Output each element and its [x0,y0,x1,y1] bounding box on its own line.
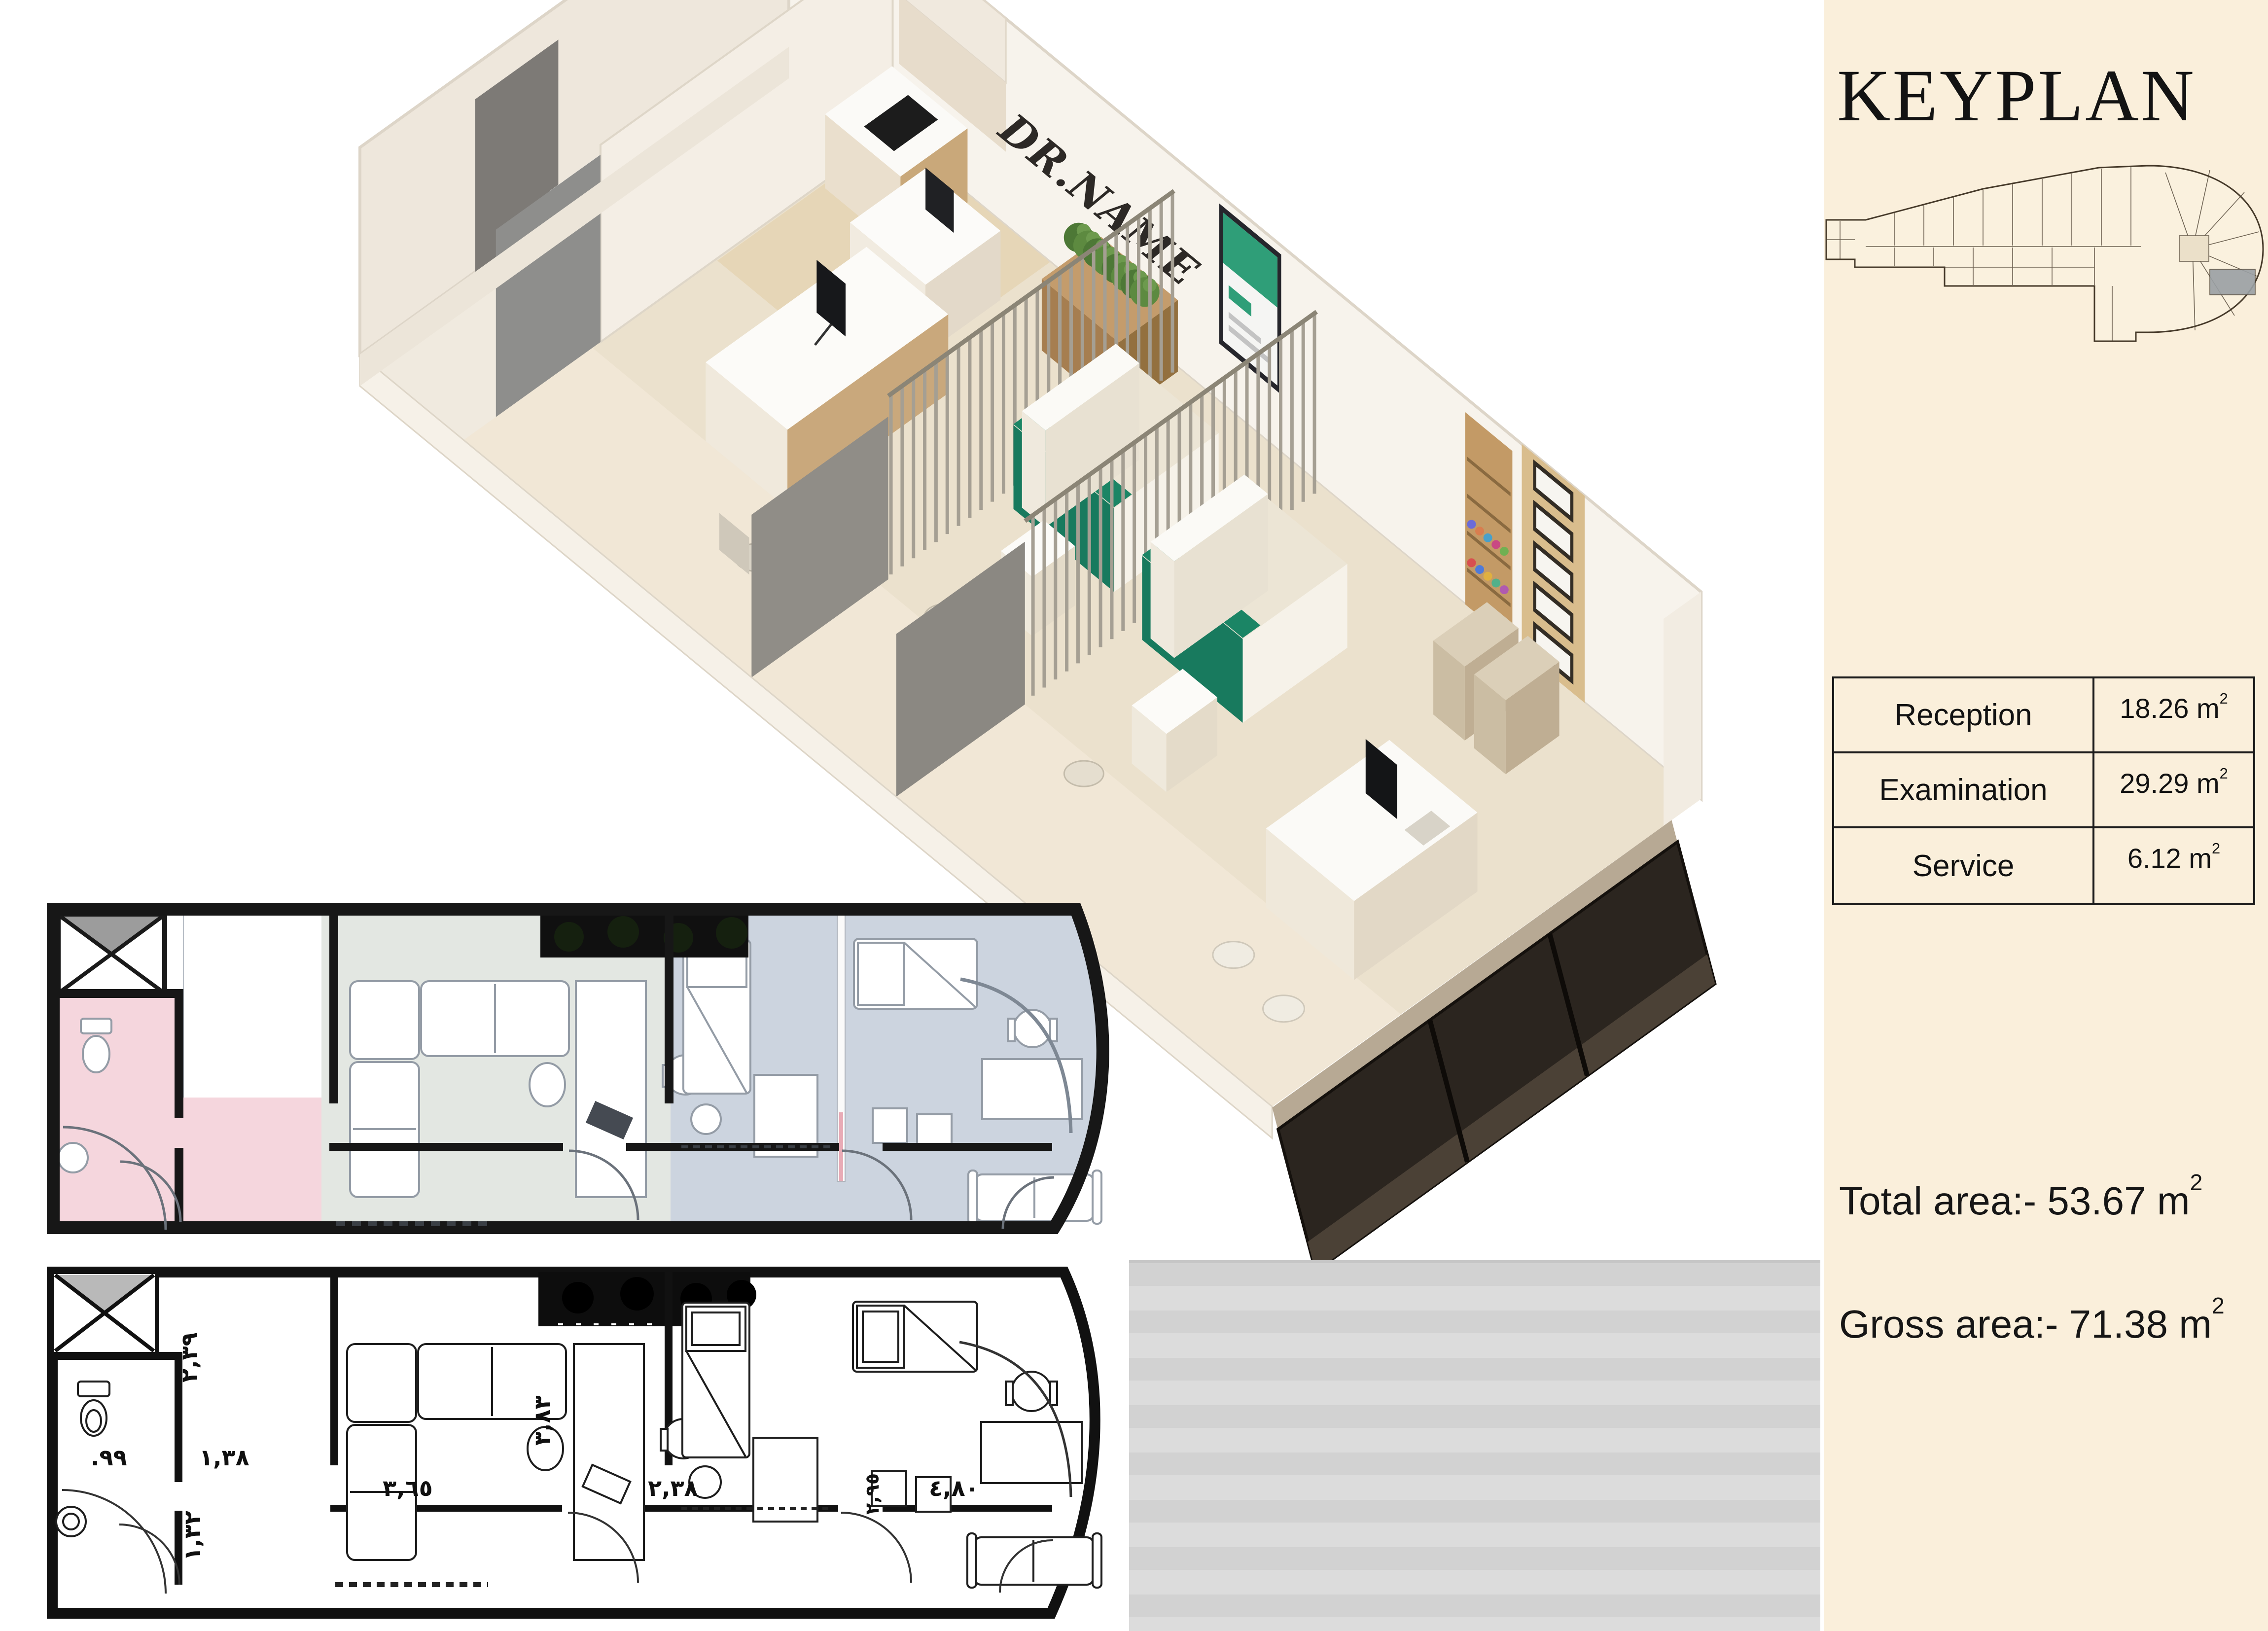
areas-table: Reception 18.26 m2 Examination 29.29 m2 … [1832,676,2255,905]
shelf-item [1484,572,1492,581]
table-row: Service 6.12 m2 [1834,828,2253,903]
info-sidebar: KEYPLAN [1824,0,2268,1631]
dim-0-99: .٩٩ [91,1444,127,1471]
room-area: 29.29 m2 [2094,753,2253,826]
desk-chair [1213,942,1254,968]
brochure-page: DR.NAME [0,0,2268,1631]
table-row: Examination 29.29 m2 [1834,753,2253,828]
dim-3-65: ٣,٦٥ [383,1475,433,1501]
colored-floor-plan [45,901,1135,1237]
dim-1-32: ١,٣٢ [179,1511,206,1561]
shelf-item [1467,520,1476,529]
bw-floor-plan: ٢,٣٩ .٩٩ ١,٣٨ ٣,٦٥ ٣,٨٣ ٢,٣٨ ٢,٩٥ ٤,٨٠ ١… [45,1265,1145,1620]
room-area: 18.26 m2 [2094,678,2253,751]
dim-2-95: ٢,٩٥ [861,1473,883,1515]
dim-2-38: ٢,٣٨ [648,1475,698,1501]
dim-4-80: ٤,٨٠ [929,1475,979,1501]
keyplan-highlighted-unit [2210,269,2255,295]
stool [1064,761,1103,786]
shelf-item [1500,547,1509,556]
shelf-item [1484,533,1492,542]
shelf-item [1475,565,1484,574]
bw-shaft-box [52,1272,157,1354]
keyplan-image [1820,123,2268,350]
colored-plan-plants [540,914,748,957]
desk-chair [1263,995,1305,1022]
shelf-item [1500,585,1509,594]
dim-3-83: ٣,٨٣ [529,1395,556,1446]
table-row: Reception 18.26 m2 [1834,678,2253,753]
gross-area-text: Gross area:- 71.38 m2 [1839,1302,2225,1347]
room-area: 6.12 m2 [2094,828,2253,903]
shelf-item [1491,540,1500,549]
dim-1-38: ١,٣٨ [199,1444,249,1471]
dim-2-39: ٢,٣٩ [176,1332,203,1383]
room-label: Service [1834,828,2094,903]
room-label: Examination [1834,753,2094,826]
room-label: Reception [1834,678,2094,751]
shelf-item [1467,558,1476,567]
shelf-item [1475,527,1484,535]
total-area-text: Total area:- 53.67 m2 [1839,1178,2202,1224]
gray-backdrop [1129,1260,1820,1631]
shaft-box [58,914,165,994]
shelf-item [1491,578,1500,587]
